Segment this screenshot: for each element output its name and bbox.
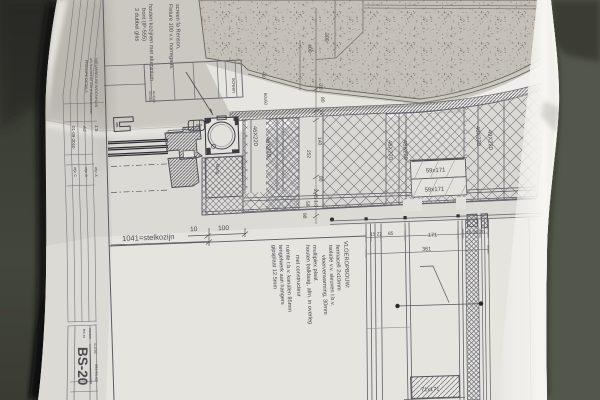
svg-text:NIEUWBOUW WOONHUIS: NIEUWBOUW WOONHUIS xyxy=(94,58,99,108)
svg-text:wijz. B: wijz. B xyxy=(84,167,88,178)
svg-text:46X220: 46X220 xyxy=(264,137,271,157)
svg-text:85: 85 xyxy=(388,231,394,237)
svg-text:98: 98 xyxy=(301,213,307,219)
svg-text:werknr: werknr xyxy=(88,328,92,340)
svg-text:Fixture 100 v.v. horregaas.: Fixture 100 v.v. horregaas. xyxy=(167,4,174,70)
svg-text:171: 171 xyxy=(428,232,437,238)
svg-text:59x171: 59x171 xyxy=(426,168,447,175)
svg-text:59x171: 59x171 xyxy=(425,187,446,194)
svg-text:1:5: 1:5 xyxy=(94,125,99,132)
svg-text:361: 361 xyxy=(422,246,431,252)
svg-text:wijz. A: wijz. A xyxy=(94,167,98,177)
svg-text:300: 300 xyxy=(323,33,329,42)
svg-text:formaat: formaat xyxy=(148,91,152,101)
svg-text:3 dubbel glas: 3 dubbel glas xyxy=(133,8,140,42)
svg-text:front (IP-555): front (IP-555) xyxy=(140,8,147,41)
svg-text:klang: klang xyxy=(215,164,220,175)
svg-text:wijz. C: wijz. C xyxy=(73,167,77,178)
svg-text:400: 400 xyxy=(306,44,312,53)
svg-text:multiplex plaat: multiplex plaat xyxy=(311,245,318,281)
svg-text:80: 80 xyxy=(317,176,323,182)
svg-text:tek.nr: tek.nr xyxy=(82,329,86,339)
svg-text:01-09-2010: 01-09-2010 xyxy=(71,126,76,149)
svg-text:46X220: 46X220 xyxy=(251,126,258,146)
svg-text:2.45 1.3: 2.45 1.3 xyxy=(312,189,319,207)
svg-text:BS-20: BS-20 xyxy=(75,347,90,385)
svg-text:46X220: 46X220 xyxy=(474,126,481,146)
svg-text:46X220: 46X220 xyxy=(386,140,393,160)
svg-text:A2: A2 xyxy=(82,126,87,132)
svg-text:100: 100 xyxy=(218,225,230,232)
svg-text:80: 80 xyxy=(319,97,325,103)
svg-text:15 22: 15 22 xyxy=(370,231,383,237)
svg-text:252: 252 xyxy=(305,150,311,159)
svg-text:a/h Noordeinde 33a te Aarlande: a/h Noordeinde 33a te Aarlanderveen xyxy=(89,58,93,114)
svg-text:20: 20 xyxy=(317,84,323,90)
svg-text:49X220: 49X220 xyxy=(486,130,493,150)
svg-text:71x171: 71x171 xyxy=(421,387,440,394)
svg-text:screen: screen xyxy=(230,78,237,93)
svg-text:140: 140 xyxy=(316,137,322,146)
svg-text:58: 58 xyxy=(304,201,310,207)
svg-text:20: 20 xyxy=(318,110,324,116)
svg-text:+60: +60 xyxy=(261,71,266,79)
svg-text:48X220: 48X220 xyxy=(401,140,408,160)
svg-text:screen fa Renson,: screen fa Renson, xyxy=(174,4,181,50)
svg-text:592/95-S5: 592/95-S5 xyxy=(94,364,98,382)
svg-text:60x60: 60x60 xyxy=(263,93,268,106)
svg-text:PRINCIPE DETAILS: PRINCIPE DETAILS xyxy=(84,60,88,93)
svg-text:S-E96: S-E96 xyxy=(93,343,97,354)
svg-text:10: 10 xyxy=(190,226,198,233)
